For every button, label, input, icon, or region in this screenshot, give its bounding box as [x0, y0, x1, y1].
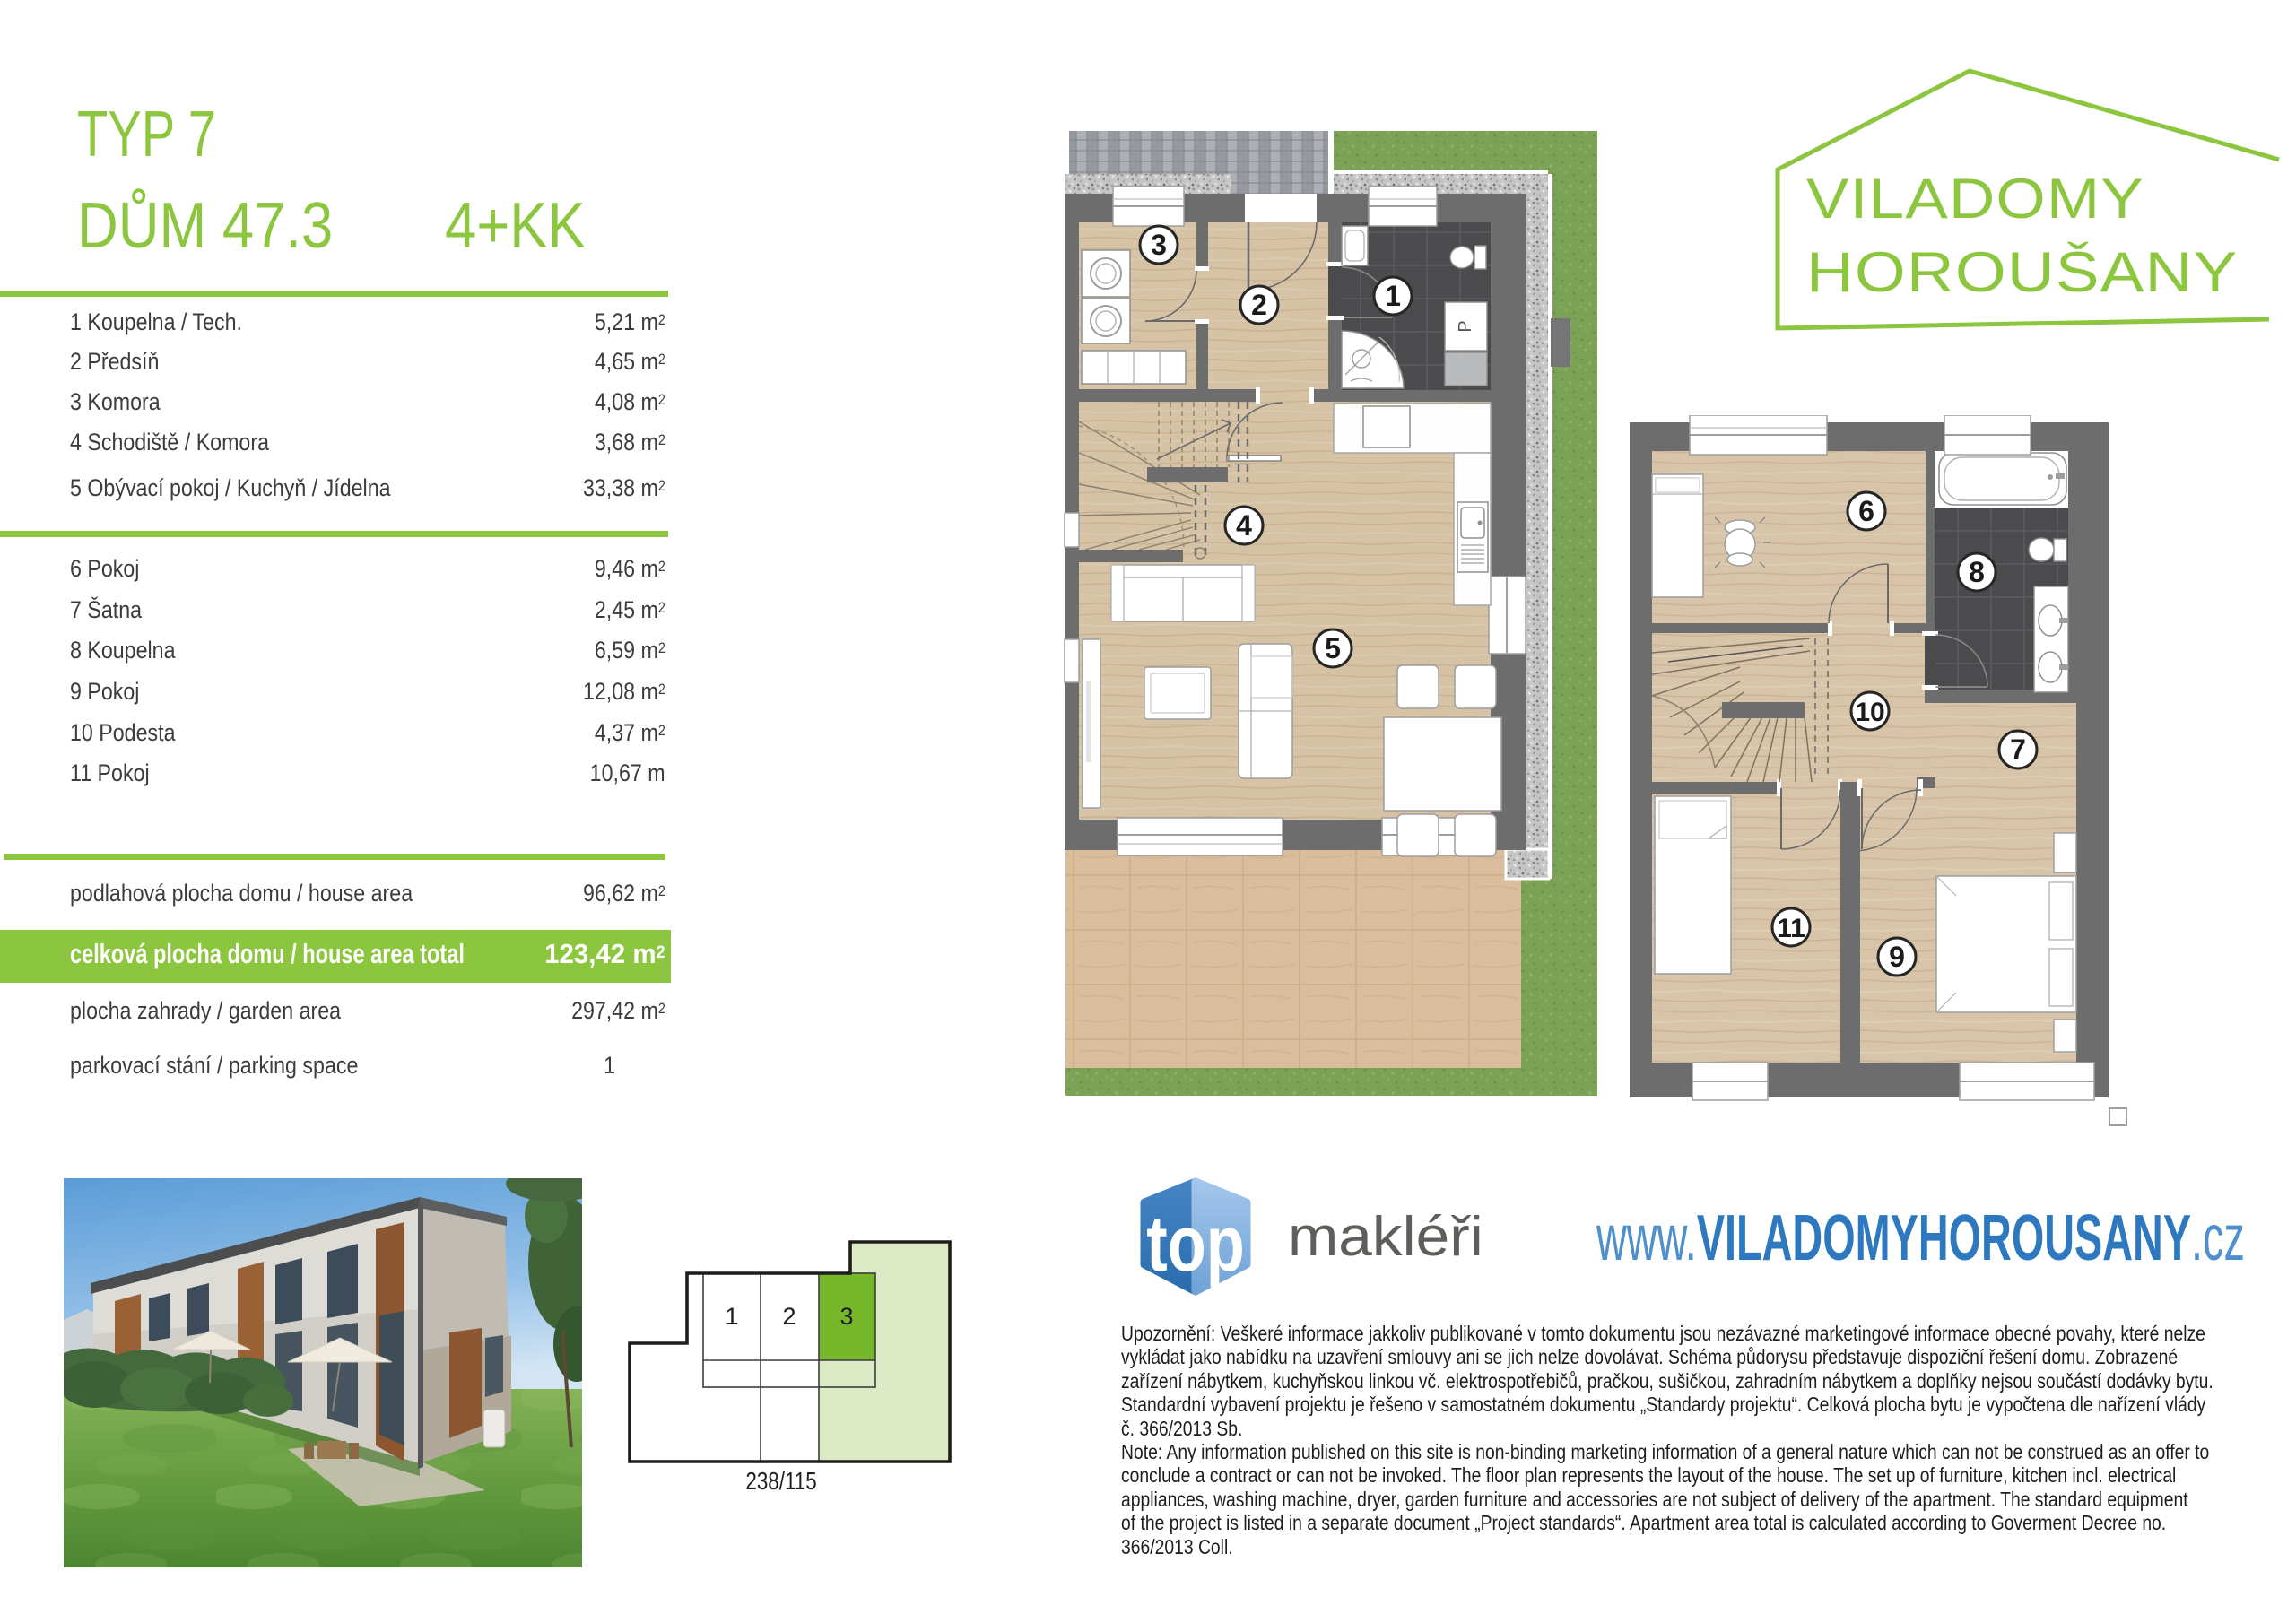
svg-text:8: 8: [1969, 556, 1985, 588]
svg-text:3: 3: [839, 1303, 853, 1330]
svg-text:1: 1: [1385, 280, 1401, 312]
svg-text:2: 2: [782, 1303, 796, 1330]
svg-text:top: top: [1146, 1199, 1244, 1287]
svg-text:2: 2: [1251, 289, 1267, 321]
svg-text:P: P: [1456, 320, 1475, 332]
svg-text:4: 4: [1236, 509, 1252, 542]
svg-text:9: 9: [1889, 941, 1905, 973]
svg-text:HOROUŠANY: HOROUŠANY: [1806, 241, 2238, 304]
svg-text:VILADOMY: VILADOMY: [1806, 168, 2144, 230]
svg-text:6: 6: [1858, 495, 1874, 527]
svg-text:5: 5: [1325, 632, 1341, 664]
svg-text:3: 3: [1151, 229, 1167, 261]
svg-text:7: 7: [2010, 733, 2026, 766]
svg-text:238/115: 238/115: [745, 1468, 816, 1496]
svg-text:10: 10: [1855, 698, 1884, 727]
svg-text:11: 11: [1777, 914, 1805, 943]
svg-text:1: 1: [725, 1303, 738, 1330]
